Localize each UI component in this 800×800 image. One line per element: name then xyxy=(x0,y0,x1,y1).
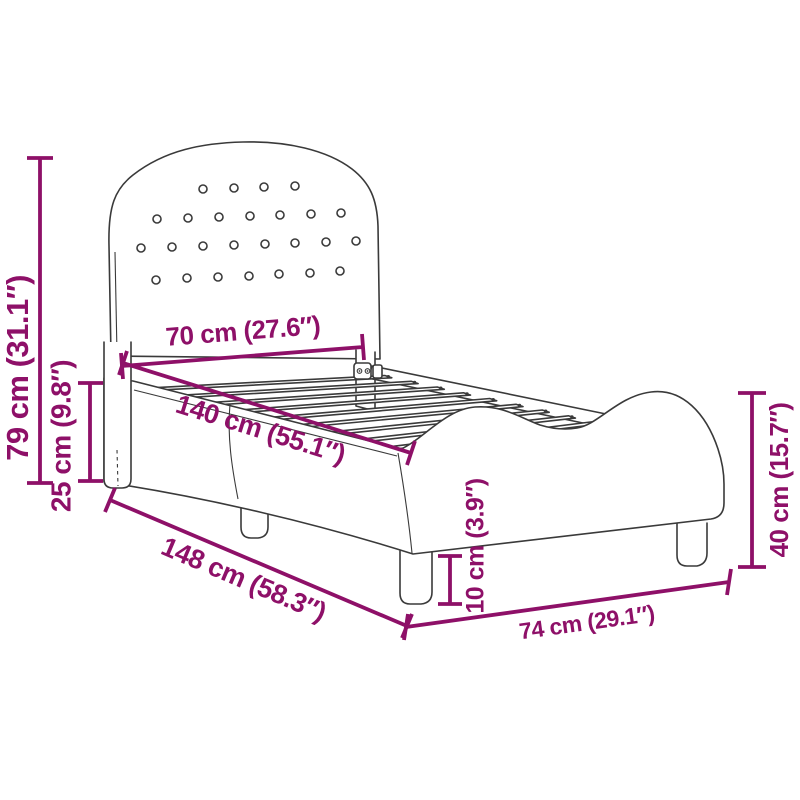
button-icon xyxy=(306,269,314,277)
button-icon xyxy=(214,273,222,281)
dimension-total-width: 74 cm (29.1″) xyxy=(404,569,731,644)
button-icon xyxy=(337,209,345,217)
button-icon xyxy=(322,238,330,246)
button-icon xyxy=(215,213,223,221)
dimension-label-rail-height: 25 cm (9.8″) xyxy=(45,360,76,512)
button-icon xyxy=(184,214,192,222)
bed-frame-dimension-diagram: 79 cm (31.1″) 25 cm (9.8″) 70 cm (27.6″)… xyxy=(0,0,800,800)
button-icon xyxy=(152,276,160,284)
button-icon xyxy=(276,211,284,219)
button-icon xyxy=(275,270,283,278)
button-icon xyxy=(336,267,344,275)
dimension-label-footboard-height: 40 cm (15.7″) xyxy=(764,403,794,558)
button-icon xyxy=(261,240,269,248)
dimension-rail-height: 25 cm (9.8″) xyxy=(45,360,103,512)
button-icon xyxy=(230,184,238,192)
button-icon xyxy=(183,274,191,282)
button-icon xyxy=(137,244,145,252)
button-icon xyxy=(307,210,315,218)
button-icon xyxy=(199,185,207,193)
dimension-label-leg-height: 10 cm (3.9″) xyxy=(462,478,490,613)
dimension-label-total-width: 74 cm (29.1″) xyxy=(517,600,655,644)
dimension-label-total-height: 79 cm (31.1″) xyxy=(0,275,35,461)
dimension-footboard-height: 40 cm (15.7″) xyxy=(738,393,794,567)
button-icon xyxy=(199,242,207,250)
mounting-bracket xyxy=(354,363,382,379)
button-icon xyxy=(168,243,176,251)
leg-footboard xyxy=(677,522,707,566)
button-icon xyxy=(230,241,238,249)
leg-front-corner xyxy=(400,549,432,604)
button-icon xyxy=(246,212,254,220)
button-icon xyxy=(153,215,161,223)
diagram-page: 79 cm (31.1″) 25 cm (9.8″) 70 cm (27.6″)… xyxy=(0,0,800,800)
button-icon xyxy=(245,272,253,280)
button-icon xyxy=(260,183,268,191)
dimension-label-total-length: 148 cm (58.3″) xyxy=(157,531,330,627)
button-icon xyxy=(352,237,360,245)
button-icon xyxy=(291,239,299,247)
button-icon xyxy=(291,182,299,190)
